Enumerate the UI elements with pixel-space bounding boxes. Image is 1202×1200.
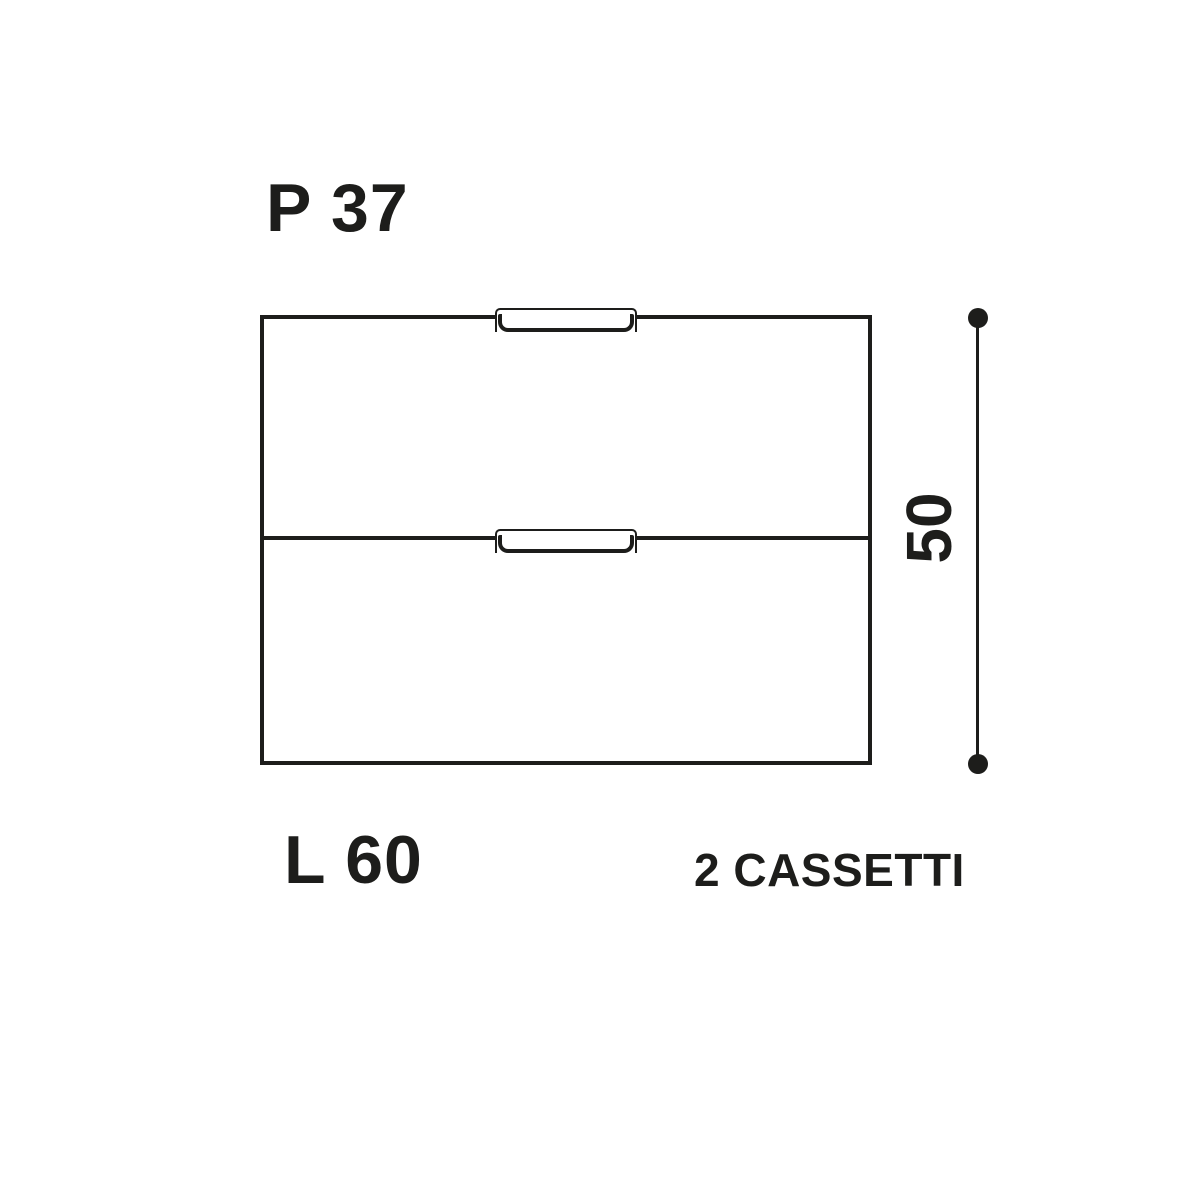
cabinet-front-view [260, 315, 872, 765]
drawer-top-handle [495, 308, 637, 332]
width-label: L 60 [284, 826, 423, 894]
dimension-endpoint-top-icon [968, 308, 988, 328]
drawer-top [264, 319, 868, 540]
height-label: 50 [897, 492, 961, 563]
handle-groove-icon [498, 535, 634, 553]
drawer-bottom [264, 540, 868, 761]
furniture-dimension-diagram: P 37 50 L 60 2 CASSETTI [0, 0, 1202, 1200]
depth-label: P 37 [266, 174, 409, 242]
handle-groove-icon [498, 314, 634, 332]
drawer-bottom-handle [495, 529, 637, 553]
height-dimension-line [976, 318, 979, 764]
dimension-endpoint-bottom-icon [968, 754, 988, 774]
drawer-count-label: 2 CASSETTI [694, 847, 965, 893]
